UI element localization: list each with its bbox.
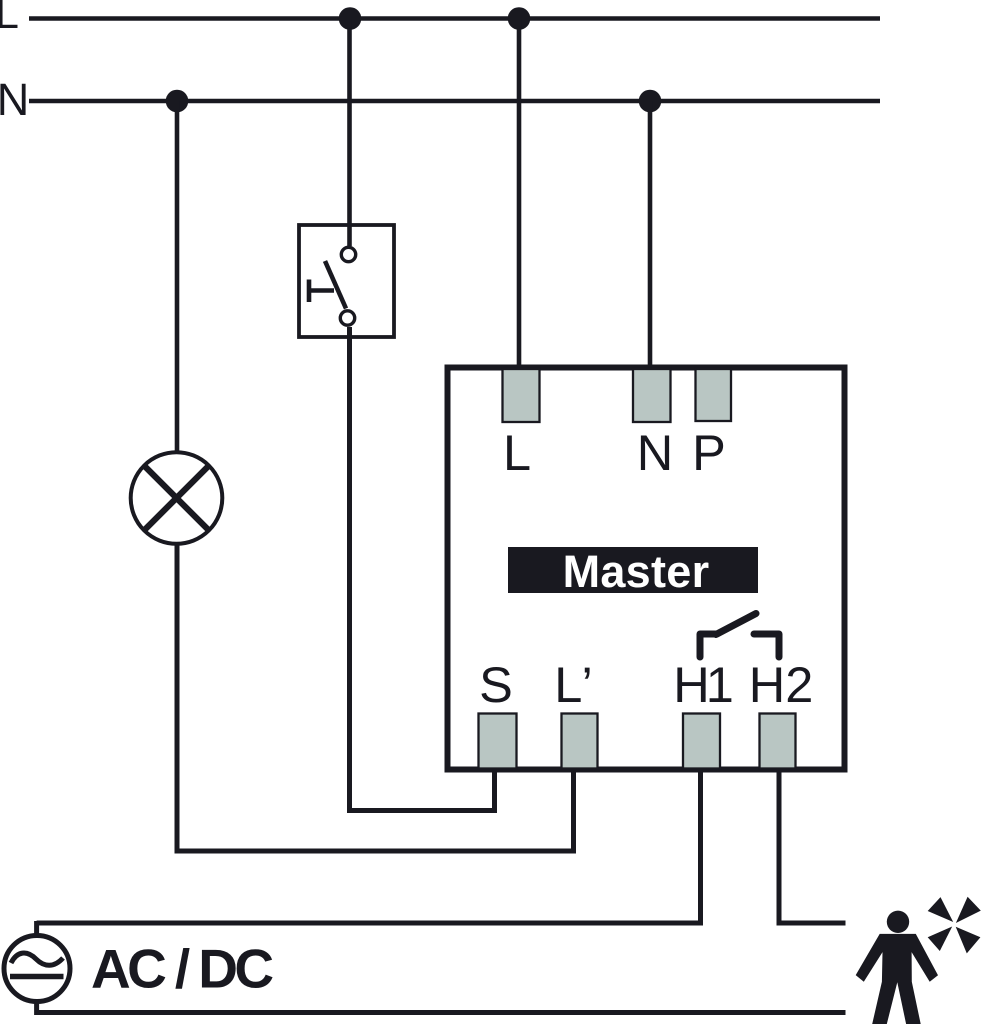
svg-text:P: P [692, 424, 726, 481]
svg-text:H2: H2 [749, 656, 814, 713]
svg-text:Master: Master [563, 546, 710, 597]
svg-text:N: N [637, 424, 673, 481]
svg-text:AC / DC: AC / DC [91, 938, 273, 1000]
svg-text:S: S [479, 656, 513, 713]
svg-text:N: N [0, 74, 29, 125]
svg-text:L: L [503, 424, 531, 481]
svg-text:H1: H1 [673, 656, 731, 713]
svg-text:L: L [0, 0, 19, 38]
svg-text:L’: L’ [554, 656, 595, 713]
